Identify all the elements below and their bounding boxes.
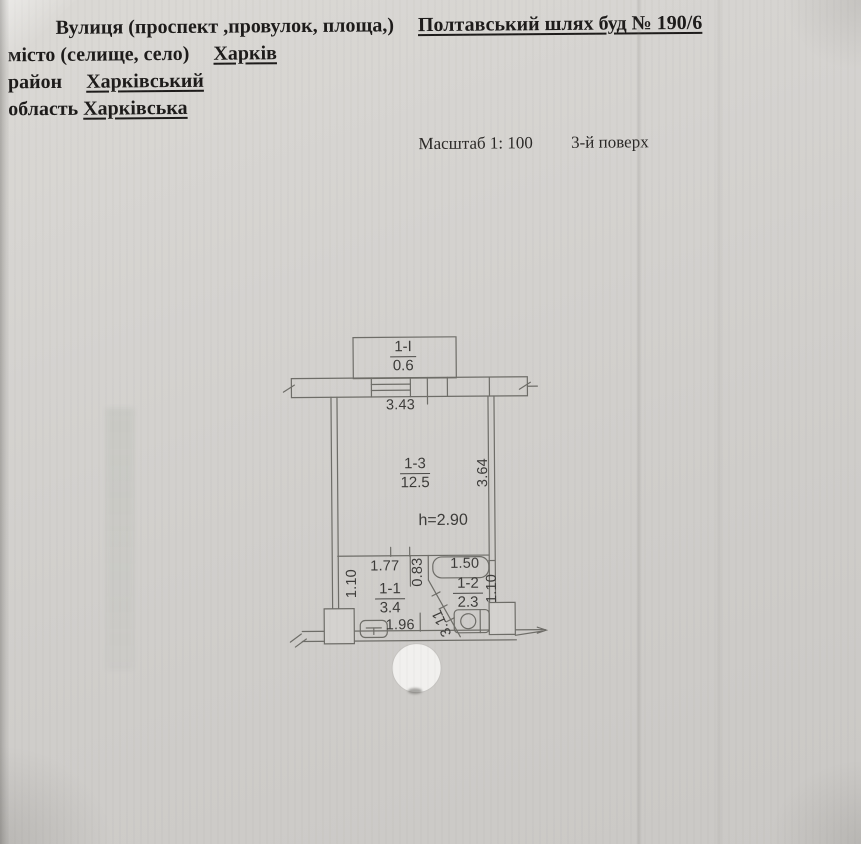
dim-top-width: 3.43 — [375, 397, 425, 413]
district-value: Харківський — [86, 70, 204, 93]
scale-label: Масштаб 1: 100 — [418, 133, 533, 153]
dim-room11-width: 1.77 — [362, 558, 408, 574]
room12-number: 1-2 — [453, 575, 483, 594]
room11-number: 1-1 — [375, 580, 405, 599]
dim-main-depth: 3.64 — [475, 453, 491, 493]
region-line: область Харківська — [8, 90, 808, 123]
scanned-floor-plan-page: Вулиця (проспект ,провулок, площа,) Полт… — [0, 0, 861, 844]
region-label: область — [8, 98, 78, 121]
main-room-number: 1-3 — [400, 455, 430, 474]
dim-room12-width: 1.50 — [442, 556, 488, 572]
city-value: Харків — [213, 42, 277, 64]
room11-label: 1-1 3.4 — [368, 580, 412, 616]
scale-line: Масштаб 1: 100 3-й поверх — [418, 132, 648, 154]
balcony-number: 1-I — [390, 338, 416, 357]
main-room-area: 12.5 — [389, 474, 441, 491]
dim-room11-bottom-width: 1.96 — [377, 617, 423, 633]
balcony-label: 1-I 0.6 — [378, 338, 428, 374]
paper-crease — [716, 0, 722, 844]
balcony-area: 0.6 — [378, 357, 428, 374]
faint-watermark — [106, 408, 134, 670]
ceiling-height-note: h=2.90 — [418, 512, 468, 530]
city-label: місто (селище, село) — [8, 43, 190, 66]
dim-passage-width: 0.83 — [410, 552, 426, 592]
street-label: Вулиця (проспект ,провулок, площа,) — [55, 14, 394, 39]
district-label: район — [8, 71, 62, 93]
ink-smudge — [408, 688, 422, 694]
stamp-cover-circle — [392, 643, 441, 692]
region-value: Харківська — [83, 97, 188, 120]
paper-crease — [636, 0, 642, 844]
dim-room11-left-height: 1.10 — [344, 564, 360, 604]
address-header: Вулиця (проспект ,провулок, площа,) Полт… — [7, 9, 808, 123]
main-room-label: 1-3 12.5 — [389, 455, 441, 491]
dim-room12-right-height: 1.10 — [484, 568, 500, 608]
toilet-icon — [454, 610, 489, 633]
room11-area: 3.4 — [368, 599, 412, 616]
street-value: Полтавський шлях буд № 190/6 — [418, 12, 702, 36]
